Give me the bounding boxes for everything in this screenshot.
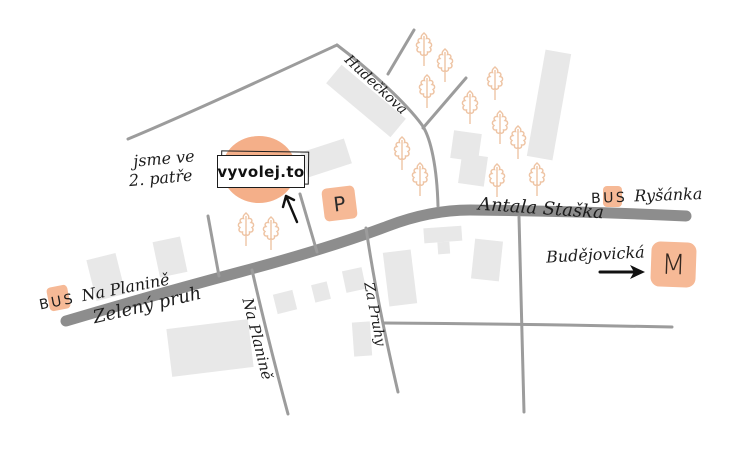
- building: [471, 239, 503, 282]
- map-drawing-layer: [0, 0, 750, 450]
- metro-marker: M: [650, 241, 697, 288]
- bus-stop-right: BUS Ryšánka: [591, 184, 703, 207]
- tree-icon: [462, 91, 477, 124]
- shop-note: jsme ve 2. patře: [132, 146, 197, 190]
- tree-icon: [437, 49, 452, 82]
- tree-icon: [416, 33, 431, 66]
- building: [383, 249, 417, 306]
- road-curve-northwest: [128, 45, 337, 139]
- road-horizontal-south: [383, 323, 672, 327]
- road-stub-left: [208, 216, 219, 276]
- tree-icon: [487, 67, 502, 100]
- shop-name: vyvolej.to: [217, 163, 304, 181]
- tree-icon: [412, 163, 427, 196]
- building: [437, 242, 450, 255]
- building: [527, 50, 571, 161]
- arrow-to-metro-icon: [598, 262, 650, 282]
- building: [311, 281, 331, 302]
- bus-right-name: Ryšánka: [634, 184, 703, 205]
- building: [273, 290, 297, 314]
- tree-icon: [419, 75, 434, 108]
- building: [166, 319, 253, 377]
- building: [423, 226, 462, 244]
- tree-icon: [529, 163, 544, 196]
- arrow-to-shop-icon: [275, 188, 305, 230]
- tree-icon: [492, 111, 507, 144]
- building: [458, 153, 488, 186]
- tree-icon: [489, 164, 504, 197]
- shop-label-box: vyvolej.to: [217, 155, 305, 188]
- parking-symbol: P: [332, 191, 347, 216]
- road-vertical-mid: [519, 217, 524, 412]
- parking-marker: P: [321, 185, 358, 222]
- hand-drawn-map: vyvolej.to jsme ve 2. patře P M Budějovi…: [0, 0, 750, 450]
- tree-icon: [510, 126, 525, 159]
- road-stub-top: [388, 30, 414, 74]
- tree-icon: [394, 137, 409, 170]
- metro-symbol: M: [661, 248, 686, 282]
- tree-icon: [238, 213, 253, 246]
